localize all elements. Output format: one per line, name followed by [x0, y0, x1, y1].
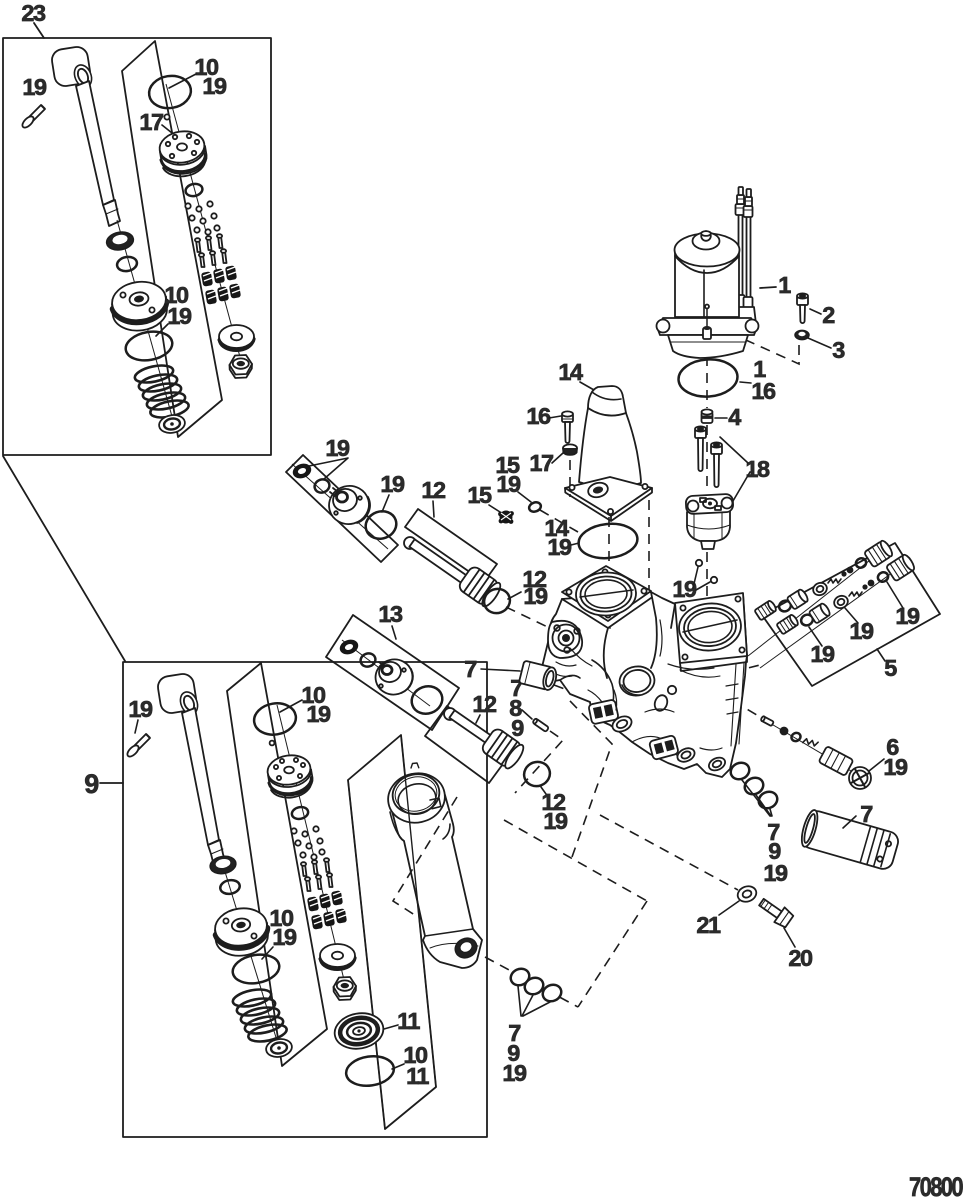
svg-text:3: 3	[832, 337, 845, 363]
svg-text:70800: 70800	[909, 1172, 963, 1198]
svg-text:19: 19	[523, 583, 548, 609]
svg-text:19: 19	[202, 73, 227, 99]
svg-text:19: 19	[496, 471, 521, 497]
svg-text:19: 19	[325, 435, 350, 461]
svg-text:17: 17	[139, 109, 164, 135]
svg-text:19: 19	[306, 701, 331, 727]
svg-text:5: 5	[884, 655, 897, 681]
svg-text:19: 19	[22, 74, 47, 100]
svg-text:7: 7	[860, 801, 873, 827]
svg-text:17: 17	[529, 450, 554, 476]
svg-text:2: 2	[822, 302, 835, 328]
svg-text:19: 19	[128, 696, 153, 722]
svg-text:19: 19	[672, 576, 697, 602]
svg-text:19: 19	[547, 534, 572, 560]
svg-text:1: 1	[778, 272, 791, 298]
svg-text:19: 19	[272, 924, 297, 950]
svg-text:21: 21	[696, 912, 721, 938]
svg-text:20: 20	[788, 945, 813, 971]
svg-text:13: 13	[378, 601, 403, 627]
svg-text:14: 14	[558, 359, 583, 385]
svg-text:9: 9	[84, 769, 99, 799]
svg-text:7: 7	[464, 656, 477, 682]
svg-text:16: 16	[526, 403, 551, 429]
svg-text:12: 12	[421, 477, 446, 503]
svg-text:19: 19	[502, 1060, 527, 1086]
svg-text:19: 19	[883, 754, 908, 780]
svg-text:12: 12	[472, 691, 497, 717]
svg-text:19: 19	[763, 860, 788, 886]
svg-text:18: 18	[745, 456, 770, 482]
svg-text:9: 9	[511, 715, 524, 741]
svg-text:11: 11	[406, 1063, 429, 1089]
svg-text:15: 15	[467, 482, 492, 508]
svg-text:19: 19	[849, 618, 874, 644]
svg-text:19: 19	[810, 641, 835, 667]
svg-text:23: 23	[21, 0, 46, 26]
svg-text:11: 11	[397, 1008, 420, 1034]
svg-text:19: 19	[167, 303, 192, 329]
svg-text:16: 16	[751, 378, 776, 404]
svg-text:19: 19	[380, 471, 405, 497]
svg-text:19: 19	[895, 603, 920, 629]
svg-text:4: 4	[728, 404, 741, 430]
svg-text:19: 19	[543, 808, 568, 834]
